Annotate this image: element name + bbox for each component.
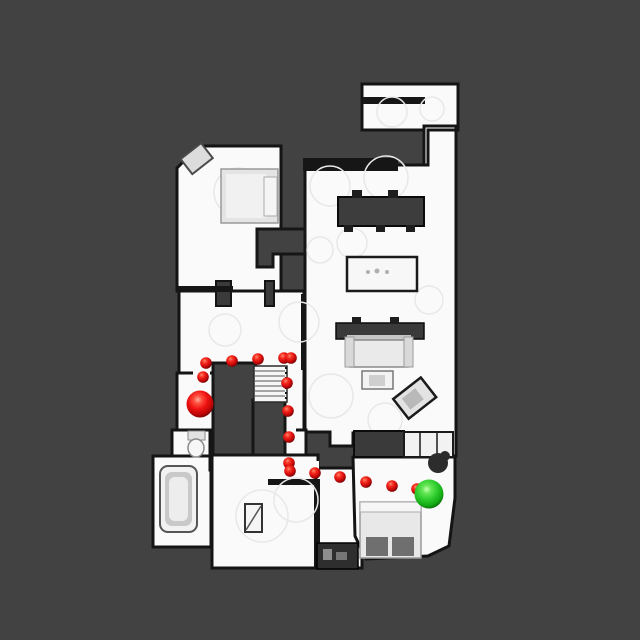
start-marker [187,391,214,418]
island-knob [366,270,370,274]
room-bottom-left [212,455,318,568]
path-waypoint [226,355,238,367]
table-leg [388,190,398,198]
island-knob [385,270,389,274]
dresser-mark [336,552,347,560]
console-leg [352,317,361,324]
table-leg [344,225,353,232]
void-stairwell-left [213,363,256,455]
bed-bottom-pillow [366,537,388,556]
sofa [350,340,408,367]
path-waypoint [197,371,209,383]
path-waypoint [309,467,321,479]
plant-leaf [440,451,450,461]
sofa-arm [404,337,413,367]
path-waypoint [281,377,293,389]
path-waypoint [285,352,297,364]
void-stairwell-bottom [253,400,285,455]
table-leg [352,190,362,198]
wall-bedroom-bottom [177,286,233,292]
console-leg [390,317,399,324]
wall-block-hall [216,281,231,306]
path-waypoint [334,471,346,483]
wall-stub-hall [265,281,274,306]
table-leg [406,225,415,232]
bed-bottom-headboard [360,502,421,512]
wall-kitchen-top [303,158,398,171]
table-leg [376,225,385,232]
bed-bottom-pillow [392,537,414,556]
path-waypoint [252,353,264,365]
island-knob [375,269,380,274]
path-waypoint [386,480,398,492]
path-waypoint [284,465,296,477]
sofa-arm [345,337,354,367]
wall-hall-right [301,294,306,370]
wall-room-top-right [363,97,425,104]
toilet-bowl [188,439,204,457]
picture-inner [369,375,385,386]
path-waypoint [200,357,212,369]
bed-top-left-mattress [226,174,266,218]
map-viewport [0,0,640,640]
bathtub-basin [169,477,188,521]
bed-top-left-pillow [264,177,277,216]
path-waypoint [283,431,295,443]
goal-marker [415,480,444,509]
kitchen-table [338,197,424,226]
kitchen-island [347,257,417,291]
dresser-mark [323,549,332,560]
room-kitchen-living [305,130,456,456]
path-waypoint [360,476,372,488]
path-waypoint [282,405,294,417]
closet [354,431,404,457]
floorplan-svg[interactable] [0,0,640,640]
